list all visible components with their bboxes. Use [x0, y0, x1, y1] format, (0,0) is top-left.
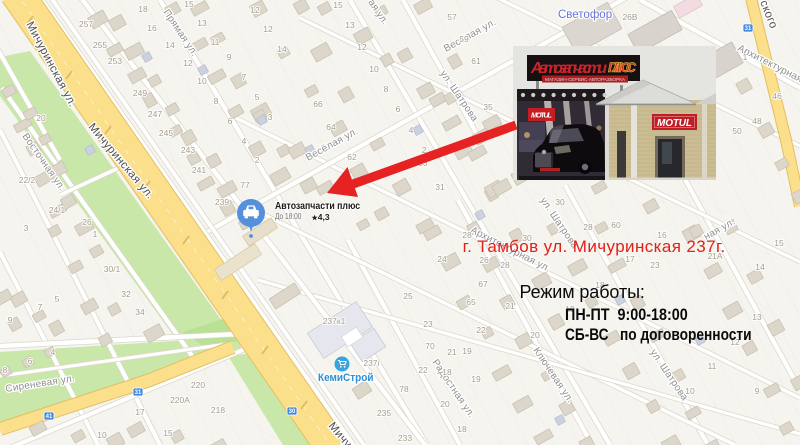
svg-text:6: 6 — [28, 356, 33, 366]
svg-text:235: 235 — [377, 408, 391, 418]
svg-text:8: 8 — [214, 96, 219, 106]
svg-text:23: 23 — [423, 319, 433, 329]
svg-text:59: 59 — [459, 34, 469, 44]
svg-text:3: 3 — [268, 112, 273, 122]
svg-text:12: 12 — [250, 5, 260, 15]
svg-text:26: 26 — [479, 255, 489, 265]
svg-text:60: 60 — [611, 220, 621, 230]
svg-text:62: 62 — [347, 152, 357, 162]
svg-text:24/1: 24/1 — [49, 205, 66, 215]
svg-text:22: 22 — [418, 365, 428, 375]
svg-text:15: 15 — [163, 428, 173, 438]
svg-text:8: 8 — [384, 84, 389, 94]
svg-text:253: 253 — [108, 56, 122, 66]
svg-text:220: 220 — [191, 380, 205, 390]
svg-text:13: 13 — [197, 18, 207, 28]
svg-text:15: 15 — [184, 0, 194, 9]
svg-text:10: 10 — [685, 386, 695, 396]
svg-text:24: 24 — [437, 254, 447, 264]
svg-text:7: 7 — [242, 72, 247, 82]
svg-text:77: 77 — [240, 180, 250, 190]
svg-text:245: 245 — [159, 128, 173, 138]
svg-text:MOTUL: MOTUL — [531, 111, 552, 120]
svg-text:30: 30 — [555, 197, 565, 207]
svg-text:243: 243 — [181, 145, 195, 155]
svg-text:3: 3 — [24, 223, 29, 233]
svg-text:241: 241 — [192, 165, 206, 175]
svg-text:9: 9 — [755, 386, 760, 396]
svg-text:22/2: 22/2 — [19, 175, 36, 185]
svg-text:18: 18 — [442, 367, 452, 377]
svg-text:9: 9 — [227, 52, 232, 62]
svg-text:237к1: 237к1 — [323, 316, 346, 326]
svg-text:18: 18 — [457, 424, 467, 434]
svg-text:65: 65 — [466, 297, 476, 307]
svg-text:41: 41 — [46, 414, 53, 420]
svg-text:21: 21 — [505, 301, 515, 311]
svg-text:61: 61 — [471, 56, 481, 66]
svg-text:Автозапчасти: Автозапчасти — [530, 60, 607, 77]
svg-text:25: 25 — [403, 291, 413, 301]
svg-text:7: 7 — [38, 302, 43, 312]
svg-text:23: 23 — [650, 260, 660, 270]
svg-text:19: 19 — [462, 346, 472, 356]
svg-text:8: 8 — [3, 365, 8, 375]
svg-text:31: 31 — [135, 390, 142, 396]
svg-text:31: 31 — [435, 182, 445, 192]
svg-text:46: 46 — [772, 91, 782, 101]
svg-text:5: 5 — [255, 92, 260, 102]
svg-text:28: 28 — [500, 260, 510, 270]
svg-text:35: 35 — [483, 102, 493, 112]
svg-text:20: 20 — [440, 399, 450, 409]
svg-text:13: 13 — [345, 20, 355, 30]
svg-text:20: 20 — [530, 330, 540, 340]
svg-text:6: 6 — [396, 104, 401, 114]
svg-text:249: 249 — [133, 88, 147, 98]
svg-text:9: 9 — [8, 315, 13, 325]
svg-text:78: 78 — [399, 384, 409, 394]
svg-text:28: 28 — [583, 222, 593, 232]
svg-text:64: 64 — [326, 122, 336, 132]
svg-text:247: 247 — [148, 109, 162, 119]
svg-text:19: 19 — [471, 374, 481, 384]
svg-text:4: 4 — [51, 347, 56, 357]
svg-text:30/1: 30/1 — [104, 264, 121, 274]
svg-text:13: 13 — [752, 312, 762, 322]
svg-text:26В: 26В — [622, 12, 637, 22]
svg-text:Светофор: Светофор — [558, 9, 612, 21]
svg-text:257: 257 — [79, 19, 93, 29]
svg-text:11: 11 — [708, 361, 717, 371]
svg-text:MOTUL: MOTUL — [657, 118, 692, 129]
svg-text:30: 30 — [289, 409, 296, 415]
svg-text:218: 218 — [211, 405, 225, 415]
svg-text:10: 10 — [369, 64, 379, 74]
svg-text:21: 21 — [447, 347, 457, 357]
svg-text:1: 1 — [93, 229, 98, 239]
svg-text:10: 10 — [197, 76, 207, 86]
svg-text:233: 233 — [398, 433, 412, 443]
svg-text:12: 12 — [357, 42, 367, 52]
svg-text:14: 14 — [277, 44, 287, 54]
svg-text:КемиСтрой: КемиСтрой — [318, 371, 374, 384]
svg-text:70: 70 — [425, 341, 435, 351]
svg-text:6: 6 — [228, 116, 233, 126]
svg-text:1: 1 — [743, 52, 748, 62]
svg-text:34: 34 — [135, 307, 145, 317]
svg-text:220А: 220А — [170, 395, 190, 405]
svg-text:11: 11 — [211, 37, 220, 47]
svg-text:255: 255 — [93, 40, 107, 50]
svg-text:10: 10 — [97, 430, 107, 440]
svg-text:12: 12 — [183, 58, 193, 68]
svg-text:17: 17 — [135, 407, 145, 417]
svg-text:20: 20 — [36, 113, 46, 123]
svg-text:67: 67 — [478, 279, 488, 289]
svg-text:4: 4 — [242, 136, 247, 146]
svg-text:14: 14 — [165, 40, 175, 50]
svg-text:ПЛЮС: ПЛЮС — [608, 59, 637, 75]
svg-text:2: 2 — [255, 155, 260, 165]
svg-text:14: 14 — [755, 262, 765, 272]
svg-text:МАГАЗИН·СЕРВИС·АВТОРАЗБОРКА: МАГАЗИН·СЕРВИС·АВТОРАЗБОРКА — [545, 77, 626, 83]
svg-text:66: 66 — [313, 99, 323, 109]
svg-text:32: 32 — [121, 289, 131, 299]
svg-text:16: 16 — [147, 23, 157, 33]
svg-text:15: 15 — [774, 238, 784, 248]
svg-text:50: 50 — [732, 126, 742, 136]
svg-text:15: 15 — [333, 0, 343, 10]
svg-text:48: 48 — [752, 116, 762, 126]
svg-text:26: 26 — [82, 217, 92, 227]
svg-text:18: 18 — [138, 4, 148, 14]
svg-text:5: 5 — [55, 294, 60, 304]
svg-text:57: 57 — [447, 12, 457, 22]
svg-text:237г: 237г — [363, 358, 380, 368]
svg-text:239: 239 — [215, 197, 229, 207]
svg-text:4: 4 — [409, 125, 414, 135]
svg-text:12: 12 — [263, 24, 273, 34]
svg-text:22: 22 — [476, 325, 486, 335]
svg-text:31: 31 — [745, 26, 752, 32]
